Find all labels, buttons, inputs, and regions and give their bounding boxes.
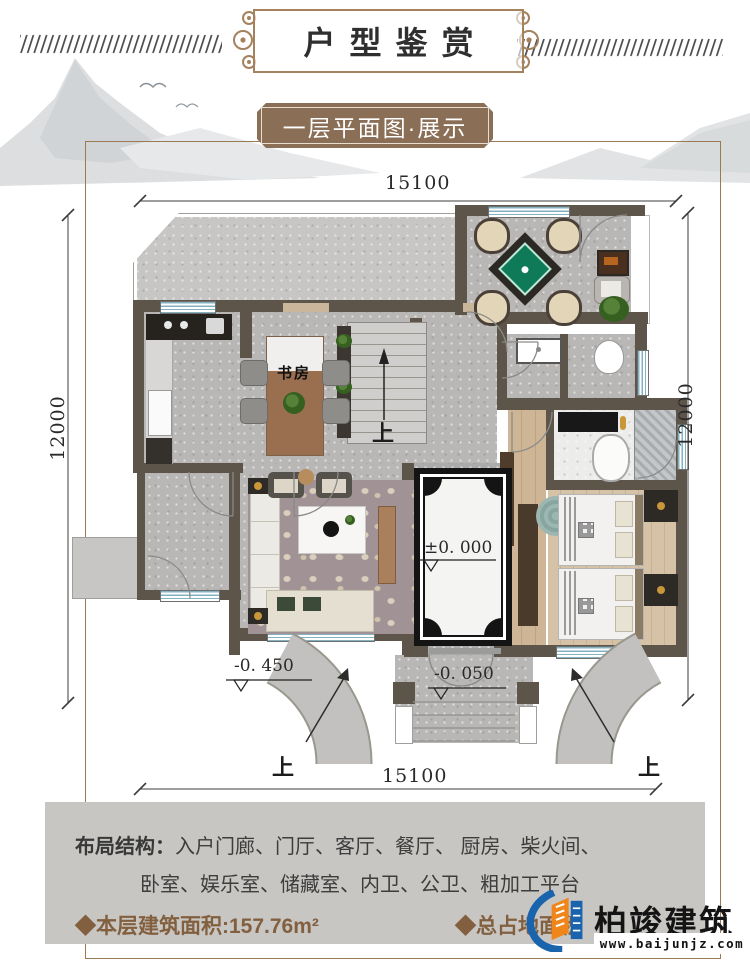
- company-website[interactable]: www.baijunjz.com: [594, 933, 750, 954]
- up-label-ramp-right: 上: [638, 750, 660, 782]
- floor-area-text: ◆本层建筑面积:157.76m²: [75, 915, 319, 938]
- level-entry: ±0. 000: [424, 538, 492, 558]
- layout-line1: 布局结构：入户门廊、门厅、客厅、餐厅、 厨房、柴火间、: [75, 830, 601, 859]
- page: 户型鉴赏 一层平面图·展示: [0, 0, 750, 964]
- up-label-stairs: 上: [372, 416, 394, 448]
- level-porch: -0. 050: [434, 664, 494, 684]
- layout-label: 布局结构：: [75, 836, 175, 858]
- dimension-bottom: 15100: [382, 765, 442, 787]
- company-website-url[interactable]: www.baijunjz.com: [600, 936, 744, 951]
- company-logo-icon: [524, 890, 592, 952]
- dimension-left: 12000: [47, 393, 69, 463]
- layout-rooms-1: 入户门廊、门厅、客厅、餐厅、 厨房、柴火间、: [175, 836, 601, 858]
- layout-line2: 卧室、娱乐室、储藏室、内卫、公卫、粗加工平台: [140, 868, 580, 897]
- up-label-ramp-left: 上: [272, 750, 294, 782]
- level-ramp: -0. 450: [234, 656, 294, 676]
- layout-rooms-2: 卧室、娱乐室、储藏室、内卫、公卫、粗加工平台: [140, 874, 580, 896]
- dimension-right: 12000: [675, 380, 697, 450]
- dimension-top: 15100: [385, 172, 445, 194]
